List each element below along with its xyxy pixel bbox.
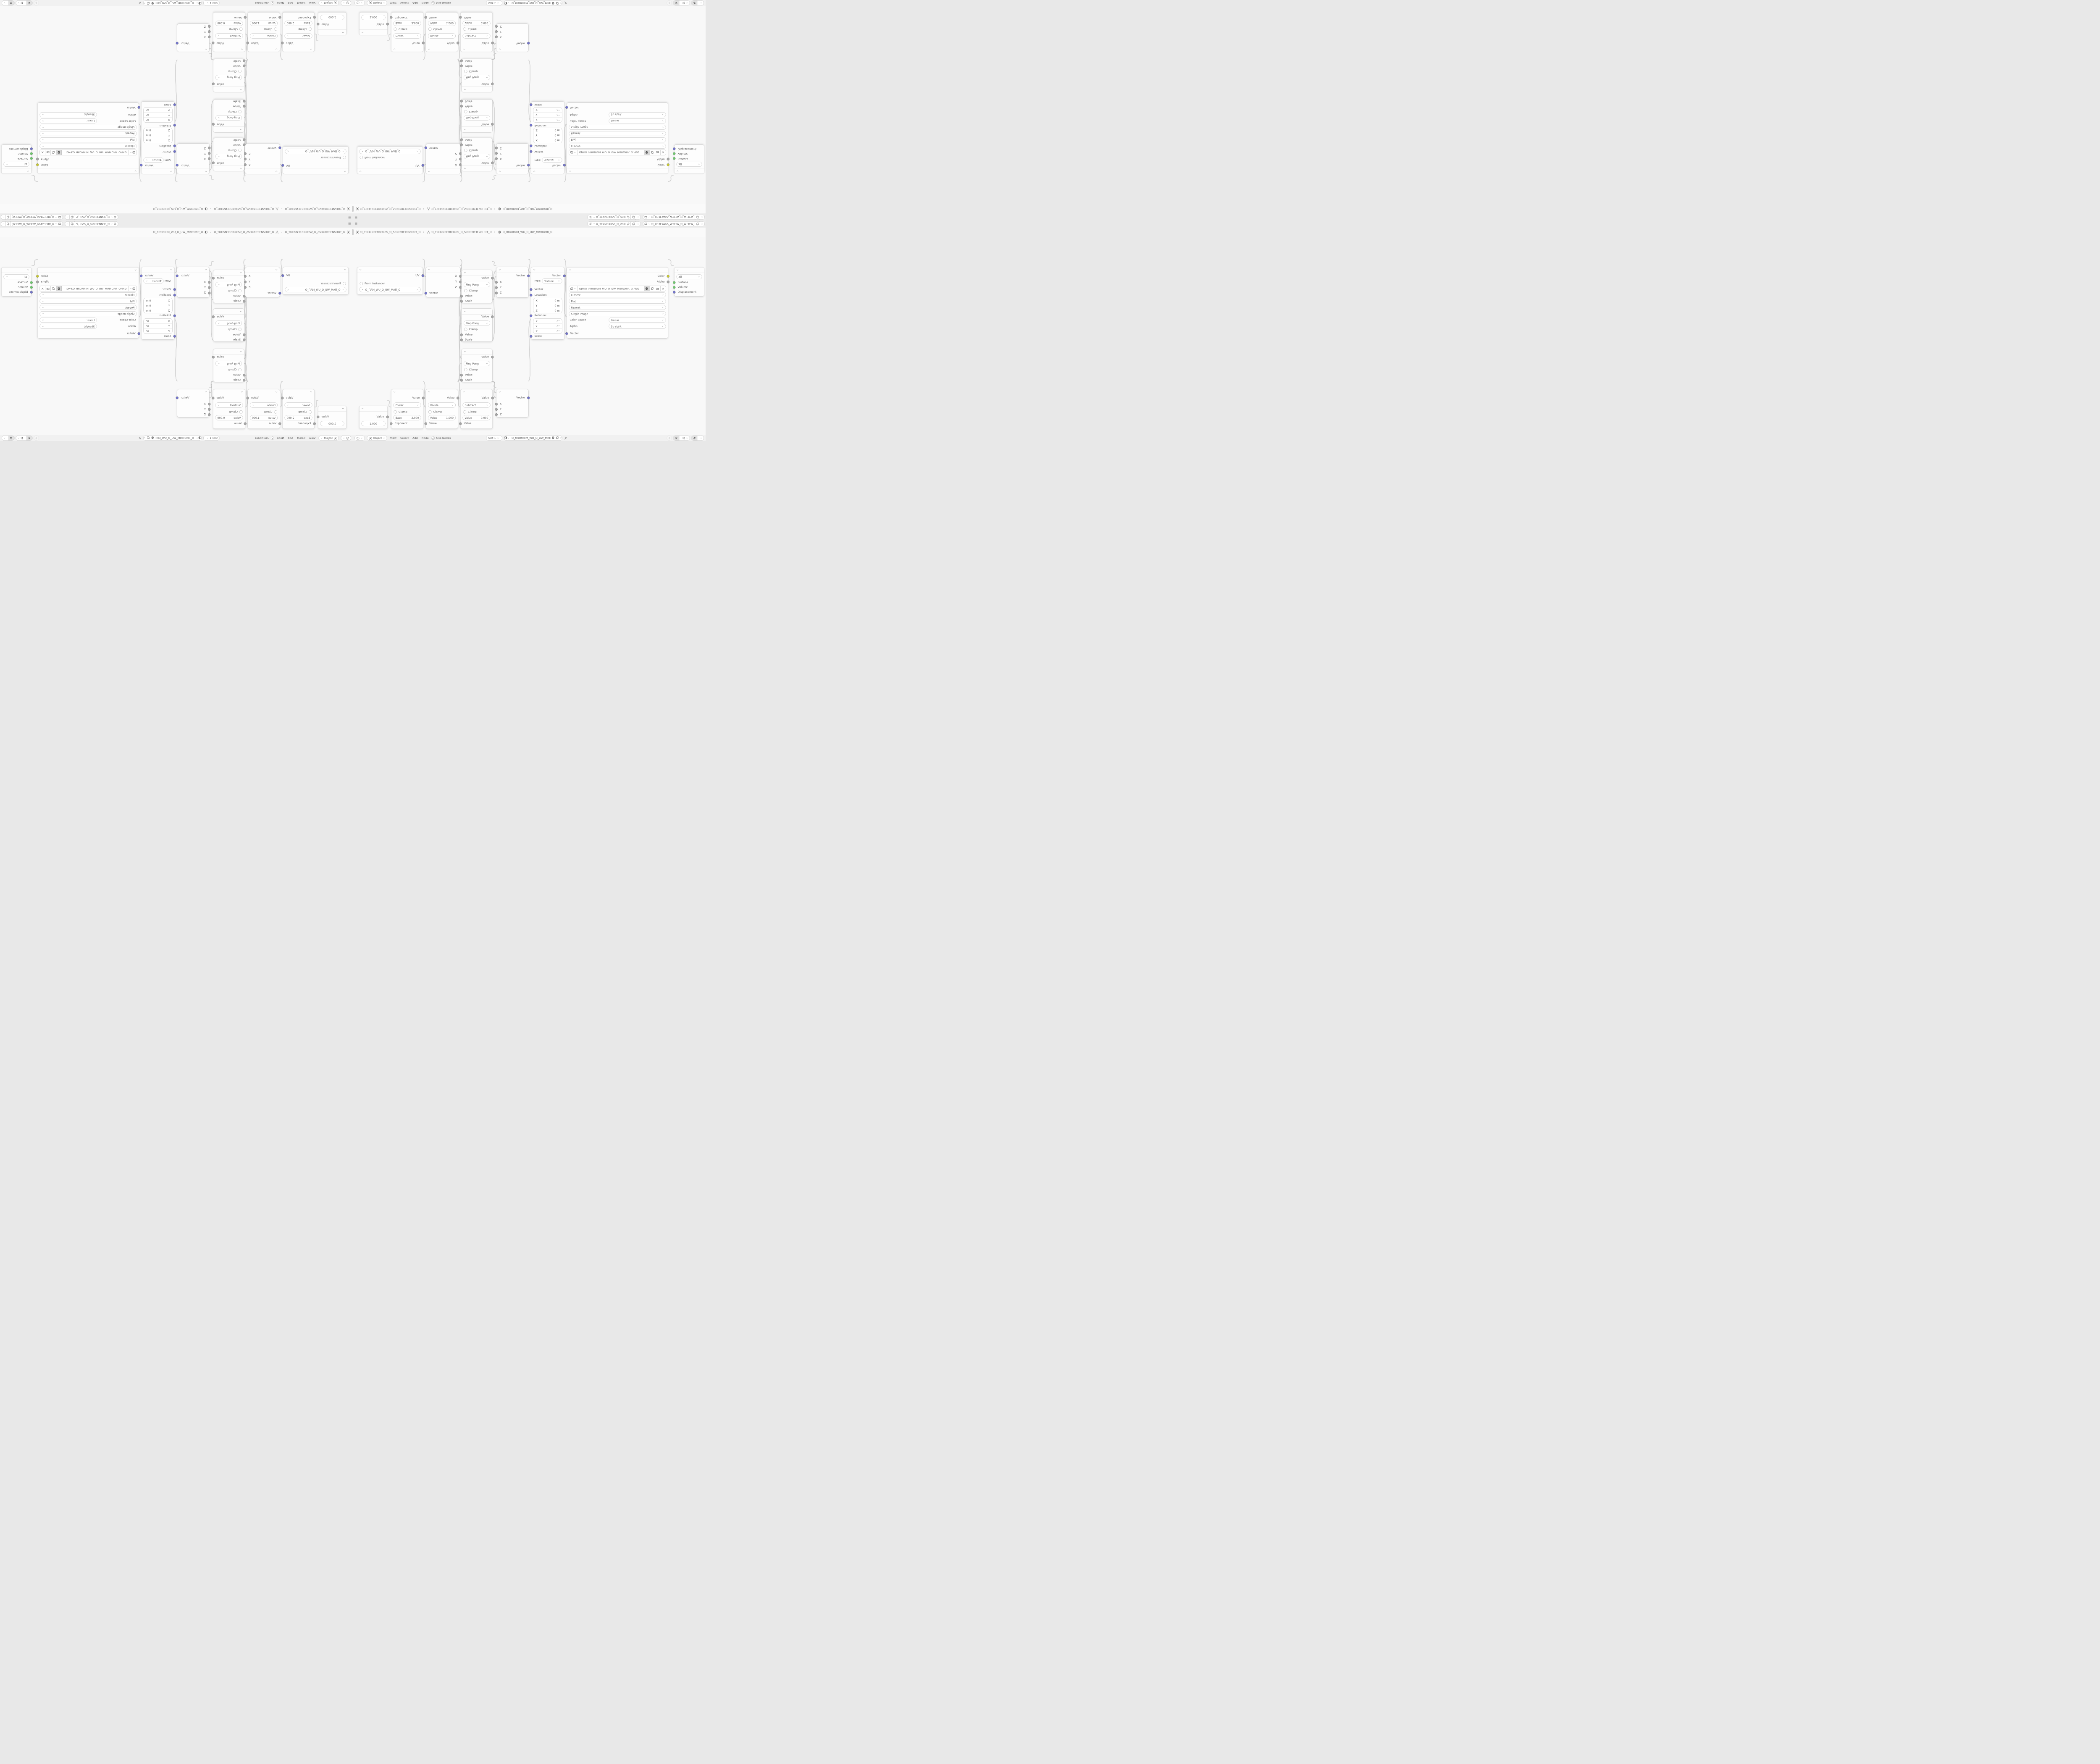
image-selector[interactable]: O_ЯRƎEYAΛΛ_WƎEIW_O_WIƎEW_ΛΛAYƎEЯR_O <box>643 215 705 220</box>
socket-value[interactable] <box>208 403 211 406</box>
gizmo-button[interactable] <box>34 436 39 441</box>
dropdown-closest[interactable]: Closest <box>569 292 666 297</box>
socket-vector[interactable] <box>176 396 179 399</box>
new-image-button[interactable] <box>51 286 57 291</box>
fake-user-button[interactable] <box>644 286 650 291</box>
copy-image-button[interactable] <box>695 221 700 226</box>
node-mapping[interactable]: VectorType:TextureVectorLocation:X0 mY0 … <box>531 102 564 174</box>
nodetree-selector[interactable]: O_ƎEИИƎƆƆSƧ_O_ƧSƆƆƎEИ... <box>588 221 641 226</box>
dropdown-closest[interactable]: Closest <box>40 292 137 297</box>
dropdown-ping-pong[interactable]: Ping-Pong <box>464 75 490 80</box>
socket-value[interactable] <box>460 139 463 142</box>
socket-value[interactable] <box>243 300 246 303</box>
number-field[interactable]: 1.000 <box>320 421 344 426</box>
socket-value[interactable] <box>491 277 494 280</box>
proportional-editing-widget[interactable] <box>2 436 15 441</box>
vector-component-field[interactable]: Y0 m <box>533 133 562 138</box>
shader-type-selector[interactable]: Object <box>318 0 339 5</box>
socket-value[interactable] <box>212 396 215 399</box>
socket-vector[interactable] <box>176 42 179 45</box>
node-value[interactable]: Value1.000 <box>318 12 346 35</box>
node-math-ping-pong-1[interactable]: ValuePing-PongClampValueScale <box>462 138 493 171</box>
fake-user-button[interactable] <box>151 1 155 5</box>
node-header[interactable] <box>248 46 280 52</box>
socket-vector[interactable] <box>140 164 143 167</box>
snap-toggle[interactable] <box>26 1 33 5</box>
node-header[interactable] <box>177 267 209 273</box>
node-header[interactable] <box>142 267 175 273</box>
node-header[interactable] <box>462 127 492 133</box>
proportional-dropdown[interactable] <box>698 436 704 441</box>
gizmo-button[interactable] <box>667 436 672 441</box>
socket-value[interactable] <box>495 152 498 155</box>
node-header[interactable] <box>177 168 209 174</box>
socket-vector[interactable] <box>425 147 428 150</box>
node-header[interactable] <box>675 268 704 273</box>
node-math-divide[interactable]: ValueDivideClampValue1.000Value <box>248 12 280 52</box>
node-header[interactable] <box>567 268 668 273</box>
breadcrumb-item[interactable]: O_ЯROЯRIM_WU_O_UW_MIЯROЯR_O <box>153 231 208 234</box>
checkbox-row[interactable]: Clamp <box>298 27 312 31</box>
node-combine-xyz-1[interactable]: VectorXYZ <box>177 267 210 298</box>
node-uv-map[interactable]: UVFrom InstancerO_ПAM_WU_O_UW_MAП_O <box>283 267 349 295</box>
slot-selector[interactable]: Slot 1 <box>203 436 220 441</box>
checkbox[interactable] <box>428 410 432 414</box>
dropdown-all[interactable]: All <box>4 162 29 167</box>
browse-material-button[interactable] <box>196 436 202 440</box>
socket-value[interactable] <box>491 396 494 399</box>
dropdown-subtract[interactable]: Subtract <box>463 403 491 408</box>
socket-value[interactable] <box>317 415 320 418</box>
menu-select[interactable]: Select <box>399 1 409 5</box>
socket-value[interactable] <box>460 60 463 63</box>
dropdown-ping-pong[interactable]: Ping-Pong <box>464 115 490 121</box>
menu-add[interactable]: Add <box>287 1 294 5</box>
node-header[interactable] <box>248 389 280 395</box>
checkbox[interactable] <box>464 328 467 331</box>
breadcrumb-item[interactable]: O_ЯROЯRIM_WU_O_UW_MIЯROЯR_O <box>498 207 553 211</box>
socket-value[interactable] <box>459 422 462 425</box>
socket-value[interactable] <box>243 333 246 336</box>
dropdown-field[interactable]: Straight <box>40 112 97 117</box>
collapsed-menus-button[interactable] <box>347 222 351 226</box>
node-mapping[interactable]: VectorType:TextureVectorLocation:X0 mY0 … <box>141 267 175 340</box>
material-selector[interactable]: O_ЯROЯRIM_WU_O_UW_MIЯROЯR_O <box>143 0 202 5</box>
checkbox-row[interactable]: Clamp <box>464 327 478 331</box>
socket-value[interactable] <box>208 413 211 416</box>
editor-type-button[interactable] <box>354 0 365 5</box>
dropdown-ping-pong[interactable]: Ping-Pong <box>215 154 242 159</box>
socket-value[interactable] <box>491 356 494 359</box>
unlink-image-button[interactable] <box>40 150 46 155</box>
node-combine-xyz-1[interactable]: VectorXYZ <box>496 267 529 298</box>
checkbox[interactable] <box>464 149 467 152</box>
copy-nodetree-button[interactable] <box>70 215 75 220</box>
node-math-power[interactable]: ValuePowerClampBase2.000Exponent <box>391 389 423 429</box>
vector-component-field[interactable]: Y0° <box>144 324 172 329</box>
unlink-material-button[interactable] <box>560 436 562 440</box>
gizmo-button[interactable] <box>667 0 672 5</box>
socket-value[interactable] <box>457 396 459 399</box>
socket-value[interactable] <box>667 281 670 283</box>
checkbox[interactable] <box>360 156 363 159</box>
socket-value[interactable] <box>36 158 39 161</box>
checkbox[interactable] <box>463 28 467 31</box>
socket-vector[interactable] <box>530 314 533 317</box>
socket-value[interactable] <box>212 356 215 359</box>
node-header[interactable] <box>531 168 564 174</box>
breadcrumb-item[interactable]: O_TOHƧИƎEЯRƆCƧS_O_SƧƆCЯRƎEИƧHOT_O <box>285 231 350 234</box>
dropdown-flat[interactable]: Flat <box>40 137 137 142</box>
dropdown-all[interactable]: All <box>4 274 29 279</box>
node-editor-canvas[interactable]: UVFrom InstancerO_ПAM_WU_O_UW_MAП_OXYZVe… <box>0 6 353 205</box>
node-header[interactable] <box>213 309 244 315</box>
snapping-widget[interactable] <box>673 0 690 5</box>
use-nodes-toggle[interactable]: Use Nodes <box>255 1 274 5</box>
checkbox[interactable] <box>239 149 242 152</box>
socket-value[interactable] <box>495 36 498 39</box>
checkbox-row[interactable]: Clamp <box>428 410 442 414</box>
breadcrumb-item[interactable]: O_ЯROЯRIM_WU_O_UW_MIЯROЯR_O <box>153 207 208 211</box>
node-math-ping-pong-2[interactable]: ValuePing-PongClampValueScale <box>213 100 244 133</box>
node-combine-xyz-2[interactable]: VectorXYZ <box>177 24 210 52</box>
dropdown-divide[interactable]: Divide <box>250 403 278 408</box>
breadcrumb-item[interactable]: O_TOHƧИƎEЯRƆCƧS_O_SƧƆCЯRƎEИƧHOT_O <box>356 207 420 211</box>
checkbox[interactable] <box>239 110 242 113</box>
dropdown-ping-pong[interactable]: Ping-Pong <box>215 75 242 80</box>
node-math-ping-pong-2[interactable]: ValuePing-PongClampValueScale <box>462 100 493 133</box>
socket-vector[interactable] <box>530 335 533 338</box>
checkbox-row[interactable]: Clamp <box>228 327 241 331</box>
number-field[interactable]: Value1.000 <box>250 415 278 420</box>
checkbox[interactable] <box>239 368 242 371</box>
socket-value[interactable] <box>208 291 211 294</box>
dropdown-single-image[interactable]: Single Image <box>40 311 137 316</box>
vector-component-field[interactable]: Z0 m <box>533 308 562 313</box>
menu-select[interactable]: Select <box>399 436 409 440</box>
dropdown-ping-pong[interactable]: Ping-Pong <box>464 282 490 287</box>
socket-value[interactable] <box>386 415 389 418</box>
node-material-output[interactable]: AllSurfaceVolumeDisplacement <box>1 267 31 297</box>
node-material-output[interactable]: AllSurfaceVolumeDisplacement <box>674 267 704 297</box>
fake-user-button[interactable] <box>56 150 62 155</box>
node-math-ping-pong-1[interactable]: ValuePing-PongClampValueScale <box>462 270 493 303</box>
vector-component-field[interactable]: Z0° <box>533 108 562 113</box>
nodetree-selector[interactable]: O_ƎEИИƎƆƆSƧ_O_ƧSƆƆƎEИ... <box>65 215 118 220</box>
node-editor-canvas[interactable]: UVFrom InstancerO_ПAM_WU_O_UW_MAП_OXYZVe… <box>0 237 353 435</box>
dropdown-field[interactable]: Linear <box>609 318 666 323</box>
node-combine-xyz-1[interactable]: VectorXYZ <box>496 144 529 174</box>
node-header[interactable] <box>283 389 315 395</box>
breadcrumb-item[interactable]: O_TOHƧИƎEЯRƆCƧS_O_SƧƆCЯRƎEИƧHOT_O <box>427 207 491 211</box>
node-math-ping-pong-1[interactable]: ValuePing-PongClampValueScale <box>213 270 244 303</box>
breadcrumb-item[interactable]: O_TOHƧИƎEЯRƆCƧS_O_SƧƆCЯRƎEИƧHOT_O <box>214 207 278 211</box>
node-value[interactable]: Value1.000 <box>359 12 388 35</box>
collapsed-menus-button[interactable] <box>354 215 358 219</box>
socket-color[interactable] <box>36 275 39 278</box>
vector-component-field[interactable]: X0° <box>533 319 562 324</box>
node-header[interactable] <box>462 349 492 355</box>
socket-value[interactable] <box>313 422 316 425</box>
uvmap-selector[interactable]: O_ПAM_WU_O_UW_MAП_O <box>285 287 346 292</box>
menu-node[interactable]: Node <box>421 1 430 5</box>
node-math-ping-pong-3[interactable]: ValuePing-PongClampValueScale <box>213 59 244 92</box>
node-editor-canvas[interactable]: UVFrom InstancerO_ПAM_WU_O_UW_MAП_OXYZVe… <box>353 237 706 435</box>
collapsed-menus-button[interactable] <box>347 215 351 219</box>
dropdown-single-image[interactable]: Single Image <box>40 125 137 130</box>
socket-vector[interactable] <box>138 332 141 335</box>
checkbox-row[interactable]: Clamp <box>464 148 478 152</box>
open-image-button[interactable] <box>655 150 661 155</box>
copy-image-button[interactable] <box>695 215 700 220</box>
node-math-subtract[interactable]: ValueSubtractClampValue0.000Value <box>460 12 493 52</box>
dropdown-flat[interactable]: Flat <box>569 299 666 304</box>
checkbox[interactable] <box>464 368 467 371</box>
node-header[interactable] <box>462 270 492 276</box>
socket-value[interactable] <box>460 379 463 382</box>
node-math-ping-pong-3[interactable]: ValuePing-PongClampValueScale <box>462 349 493 382</box>
node-separate-xyz[interactable]: XYZVector <box>426 144 461 174</box>
node-combine-xyz-1[interactable]: VectorXYZ <box>177 144 210 174</box>
dropdown-single-image[interactable]: Single Image <box>569 125 666 130</box>
proportional-toggle[interactable] <box>8 436 15 441</box>
vector-component-field[interactable]: Y0 m <box>144 303 172 308</box>
area-resize-handle[interactable] <box>352 206 353 212</box>
node-math-ping-pong-3[interactable]: ValuePing-PongClampValueScale <box>213 349 244 382</box>
checkbox[interactable] <box>464 70 467 73</box>
dropdown-ping-pong[interactable]: Ping-Pong <box>464 361 490 366</box>
menu-view[interactable]: View <box>389 1 397 5</box>
checkbox-row[interactable]: Clamp <box>228 148 241 152</box>
vector-component-field[interactable]: Z0° <box>144 329 172 334</box>
use-nodes-checkbox[interactable] <box>271 1 274 5</box>
node-header[interactable] <box>318 29 346 35</box>
socket-value[interactable] <box>244 422 247 425</box>
checkbox-row[interactable]: Clamp <box>428 27 442 31</box>
slot-selector[interactable]: Slot 1 <box>203 0 220 5</box>
checkbox[interactable] <box>394 28 397 31</box>
node-math-power[interactable]: ValuePowerClampBase2.000Exponent <box>391 12 423 52</box>
node-header[interactable] <box>496 389 528 395</box>
breadcrumb-item[interactable]: O_TOHƧИƎEЯRƆCƧS_O_SƧƆCЯRƎEИƧHOT_O <box>285 207 350 211</box>
area-resize-handle[interactable] <box>352 229 353 235</box>
node-image-texture[interactable]: ColorAlphaGИP.O_ЯROЯRIM_WU_O_UW_MIЯROЯR_… <box>567 267 668 339</box>
node-header[interactable] <box>461 389 493 395</box>
socket-value[interactable] <box>390 422 393 425</box>
socket-vector[interactable] <box>530 144 533 147</box>
menu-add[interactable]: Add <box>412 1 419 5</box>
fake-user-button[interactable] <box>151 436 155 440</box>
material-selector[interactable]: O_ЯROЯRIM_WU_O_UW_MIЯROЯR_O <box>504 436 562 441</box>
browse-material-button[interactable] <box>196 1 202 5</box>
unlink-material-button[interactable] <box>560 1 562 5</box>
socket-value[interactable] <box>243 379 246 382</box>
checkbox-row[interactable]: From Instancer <box>360 281 385 286</box>
dropdown-flat[interactable]: Flat <box>569 137 666 142</box>
node-image-texture[interactable]: ColorAlphaGИP.O_ЯROЯRIM_WU_O_UW_MIЯROЯR_… <box>37 103 139 174</box>
proportional-toggle[interactable] <box>8 1 15 5</box>
snap-mode-dropdown[interactable] <box>680 1 690 5</box>
unlink-image-button[interactable] <box>40 286 46 291</box>
number-field[interactable]: Base2.000 <box>394 21 421 26</box>
checkbox-row[interactable]: Clamp <box>464 289 478 293</box>
nodetree-selector[interactable]: O_ƎEИИƎƆƆSƧ_O_ƧSƆƆƎEИ... <box>65 221 118 226</box>
node-uv-map[interactable]: UVFrom InstancerO_ПAM_WU_O_UW_MAП_O <box>357 267 423 295</box>
use-nodes-toggle[interactable]: Use Nodes <box>432 436 451 440</box>
node-header[interactable] <box>426 267 460 273</box>
socket-value[interactable] <box>36 281 39 283</box>
node-header[interactable] <box>213 46 245 52</box>
socket-vector[interactable] <box>565 106 568 109</box>
number-field[interactable]: Value1.000 <box>428 21 456 26</box>
socket-vector[interactable] <box>673 147 676 150</box>
socket-value[interactable] <box>208 408 211 411</box>
vector-component-field[interactable]: X0 m <box>533 138 562 143</box>
socket-value[interactable] <box>460 144 463 147</box>
socket-value[interactable] <box>212 315 215 318</box>
editor-type-button[interactable] <box>354 436 365 441</box>
socket-value[interactable] <box>495 408 498 411</box>
socket-vector[interactable] <box>530 150 533 153</box>
dropdown-repeat[interactable]: Repeat <box>569 131 666 136</box>
dropdown-single-image[interactable]: Single Image <box>569 311 666 316</box>
checkbox[interactable] <box>394 410 397 414</box>
vector-component-field[interactable]: Y0 m <box>144 133 172 138</box>
dropdown-flat[interactable]: Flat <box>40 299 137 304</box>
vector-component-field[interactable]: Y0° <box>533 324 562 329</box>
socket-value[interactable] <box>425 16 428 19</box>
socket-value[interactable] <box>495 281 498 284</box>
socket-value[interactable] <box>495 291 498 294</box>
socket-value[interactable] <box>212 83 215 86</box>
checkbox-row[interactable]: From Instancer <box>321 281 346 286</box>
breadcrumb-item[interactable]: O_TOHƧИƎEЯRƆCƧS_O_SƧƆCЯRƎEИƧHOT_O <box>214 231 278 234</box>
node-header[interactable] <box>318 406 346 412</box>
socket-shader[interactable] <box>30 286 33 289</box>
checkbox-row[interactable]: Clamp <box>394 410 407 414</box>
slot-selector[interactable]: Slot 1 <box>486 0 503 5</box>
socket-vector[interactable] <box>173 335 176 338</box>
node-math-subtract[interactable]: ValueSubtractClampValue0.000Value <box>460 389 493 429</box>
checkbox[interactable] <box>463 410 467 414</box>
node-header[interactable] <box>461 46 493 52</box>
checkbox[interactable] <box>309 410 312 414</box>
checkbox[interactable] <box>274 410 278 414</box>
socket-value[interactable] <box>491 315 494 318</box>
copy-nodetree-button[interactable] <box>631 221 636 226</box>
node-math-subtract[interactable]: ValueSubtractClampValue0.000Value <box>213 389 245 429</box>
vector-component-field[interactable]: X0 m <box>533 298 562 303</box>
browse-image-button[interactable] <box>569 150 577 155</box>
breadcrumb-item[interactable]: O_ЯROЯRIM_WU_O_UW_MIЯROЯR_O <box>498 231 553 234</box>
checkbox[interactable] <box>464 289 467 292</box>
node-header[interactable] <box>283 46 315 52</box>
dropdown-closest[interactable]: Closest <box>569 144 666 149</box>
dropdown-ping-pong[interactable]: Ping-Pong <box>464 154 490 159</box>
snap-toggle[interactable] <box>673 436 680 441</box>
node-header[interactable] <box>462 309 492 315</box>
checkbox[interactable] <box>239 328 242 331</box>
dropdown-ping-pong[interactable]: Ping-Pong <box>215 282 242 287</box>
socket-value[interactable] <box>495 157 498 160</box>
dropdown-repeat[interactable]: Repeat <box>569 305 666 310</box>
vector-component-field[interactable]: X0 m <box>144 138 172 143</box>
node-header[interactable] <box>213 349 244 355</box>
node-material-output[interactable]: AllSurfaceVolumeDisplacement <box>1 145 31 174</box>
socket-color[interactable] <box>36 163 39 166</box>
node-header[interactable] <box>283 168 349 174</box>
shader-type-selector[interactable]: Object <box>367 436 387 441</box>
menu-node[interactable]: Node <box>421 436 430 440</box>
gizmo-button[interactable] <box>34 0 39 5</box>
unlink-material-button[interactable] <box>144 436 146 440</box>
socket-value[interactable] <box>425 422 428 425</box>
number-field[interactable]: Value1.000 <box>250 21 278 26</box>
dropdown-power[interactable]: Power <box>285 34 312 39</box>
copy-image-button[interactable] <box>5 221 11 226</box>
socket-vector[interactable] <box>530 124 533 127</box>
dropdown-power[interactable]: Power <box>394 403 421 408</box>
dropdown-field[interactable]: Texture <box>542 278 562 283</box>
socket-value[interactable] <box>212 162 215 165</box>
dropdown-divide[interactable]: Divide <box>428 403 456 408</box>
proportional-editing-widget[interactable] <box>691 436 704 441</box>
editor-type-button[interactable] <box>341 436 352 441</box>
socket-value[interactable] <box>208 286 211 289</box>
fake-user-button[interactable] <box>56 286 62 291</box>
snap-mode-dropdown[interactable] <box>16 436 25 441</box>
socket-shader[interactable] <box>673 281 676 284</box>
node-header[interactable] <box>426 168 460 174</box>
node-separate-xyz[interactable]: XYZVector <box>245 144 280 174</box>
open-image-button[interactable] <box>45 286 51 291</box>
checkbox[interactable] <box>343 156 346 159</box>
node-header[interactable] <box>213 165 244 171</box>
node-header[interactable] <box>245 168 280 174</box>
copy-nodetree-button[interactable] <box>631 215 636 220</box>
snapping-widget[interactable] <box>673 436 690 441</box>
checkbox-row[interactable]: From Instancer <box>321 155 346 160</box>
snapping-widget[interactable] <box>16 0 33 5</box>
checkbox-row[interactable]: Clamp <box>264 410 277 414</box>
snap-toggle[interactable] <box>26 436 33 441</box>
checkbox[interactable] <box>239 410 243 414</box>
image-selector[interactable]: O_ЯRƎEYAΛΛ_WƎEIW_O_WIƎEW_ΛΛAYƎEЯR_O <box>1 215 63 220</box>
dropdown-divide[interactable]: Divide <box>250 34 278 39</box>
node-editor-canvas[interactable]: UVFrom InstancerO_ПAM_WU_O_UW_MAП_OXYZVe… <box>353 6 706 205</box>
node-header[interactable] <box>38 268 139 273</box>
menu-node[interactable]: Node <box>276 436 285 440</box>
socket-value[interactable] <box>243 374 246 377</box>
socket-shader[interactable] <box>30 281 33 284</box>
uvmap-selector[interactable]: O_ПAM_WU_O_UW_MAП_O <box>360 287 421 292</box>
copy-material-button[interactable] <box>147 436 150 440</box>
uvmap-selector[interactable]: O_ПAM_WU_O_UW_MAП_O <box>360 149 421 154</box>
dropdown-ping-pong[interactable]: Ping-Pong <box>464 321 490 326</box>
checkbox-row[interactable]: Clamp <box>463 27 477 31</box>
node-header[interactable] <box>213 87 244 92</box>
checkbox-row[interactable]: Clamp <box>464 69 478 73</box>
dropdown-subtract[interactable]: Subtract <box>215 403 243 408</box>
proportional-dropdown[interactable] <box>2 436 8 441</box>
material-selector[interactable]: O_ЯROЯRIM_WU_O_UW_MIЯROЯR_O <box>143 436 202 441</box>
socket-shader[interactable] <box>673 286 676 289</box>
node-header[interactable] <box>357 267 423 273</box>
copy-image-button[interactable] <box>5 215 11 220</box>
number-field[interactable]: Base2.000 <box>285 415 312 420</box>
socket-value[interactable] <box>281 42 284 45</box>
node-math-divide[interactable]: ValueDivideClampValue1.000Value <box>426 12 458 52</box>
